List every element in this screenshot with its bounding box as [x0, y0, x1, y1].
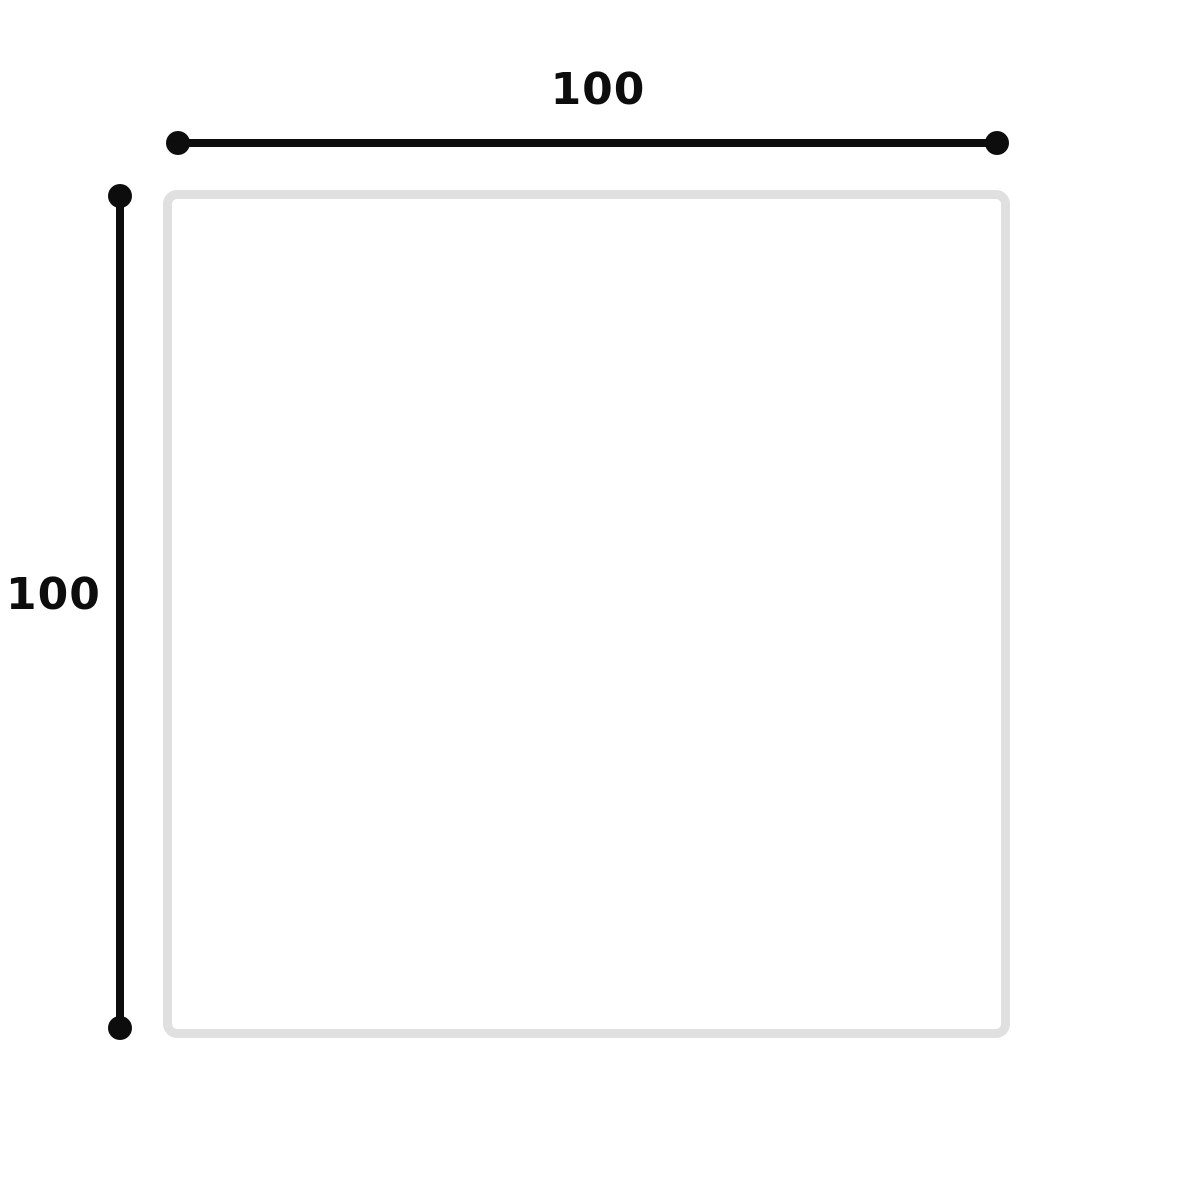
height-endpoint-dot-bottom	[108, 1016, 132, 1040]
width-dimension-line	[178, 139, 997, 147]
height-dimension-line	[116, 196, 124, 1028]
width-endpoint-dot-right	[985, 131, 1009, 155]
diagram-canvas: 100 100	[0, 0, 1200, 1200]
square-shape	[163, 190, 1010, 1038]
width-dimension-label: 100	[178, 68, 1018, 112]
height-endpoint-dot-top	[108, 184, 132, 208]
height-dimension-label: 100	[6, 573, 100, 617]
width-endpoint-dot-left	[166, 131, 190, 155]
